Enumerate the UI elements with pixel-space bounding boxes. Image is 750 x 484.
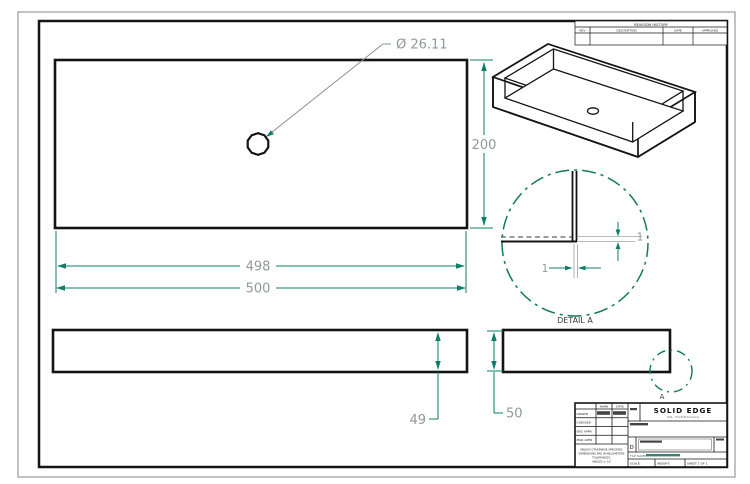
size-dwg-rev-row: D [630,437,725,452]
logo-subtitle: UGS - The PLM Company [667,415,700,419]
revision-table: REVISION HISTORY REV DESCRIPTION DATE AP… [575,21,727,45]
file-name-entry [646,454,680,456]
detail-dim-bottom-label: 1 [542,263,549,275]
rev-value-smudge [716,439,724,441]
revision-table-title: REVISION HISTORY [634,23,669,27]
dwg-no-entry [640,441,662,443]
weight-label: WEIGHT: [657,461,670,465]
drawing-sheet: REVISION HISTORY REV DESCRIPTION DATE AP… [0,0,750,484]
revision-col-rev: REV [579,29,586,33]
note-line-4: ANGLES ± 0.5 [592,460,611,464]
dim-width-inner-label: 498 [246,260,271,275]
dim-height-label: 200 [472,138,497,153]
revision-col-description: DESCRIPTION [616,29,636,33]
detail-dim-right-label: 1 [637,232,644,244]
solid-edge-logo: SOLID EDGE [654,406,713,415]
col-name-label: NAME [600,405,609,409]
revision-col-date: DATE [674,29,682,33]
col-date-label: DATE [616,405,624,409]
title-entry-smudge [630,423,648,425]
rev-entry-smudge [630,408,637,410]
title-block: NAME DATE DRAWN CHECKED ENG APPR MGR APP… [575,403,727,467]
detail-marker-label: A [660,393,665,401]
file-name-label: FILE NAME: [630,454,647,458]
dim-depth-inner-label: 49 [409,413,426,428]
scale-label: SCALE: [630,461,641,465]
row-checked-label: CHECKED [577,421,592,425]
dim-width-outer-label: 500 [246,282,271,297]
row-drawn-label: DRAWN [577,412,588,416]
row-eng-appr-label: ENG APPR [577,430,592,434]
row-mgr-appr-label: MGR APPR [577,438,593,442]
drawn-date-entry [613,411,626,415]
size-value: D [630,445,634,451]
detail-view-label: DETAIL A [557,316,593,325]
iso-hole [588,108,599,114]
dim-depth-outer-label: 50 [506,407,523,422]
hole-diameter-label: Ø 26.11 [396,38,448,53]
sheet-label: SHEET 1 OF 1 [687,461,708,465]
drawn-name-entry [597,411,610,415]
revision-col-approved: APPROVED [702,29,719,33]
